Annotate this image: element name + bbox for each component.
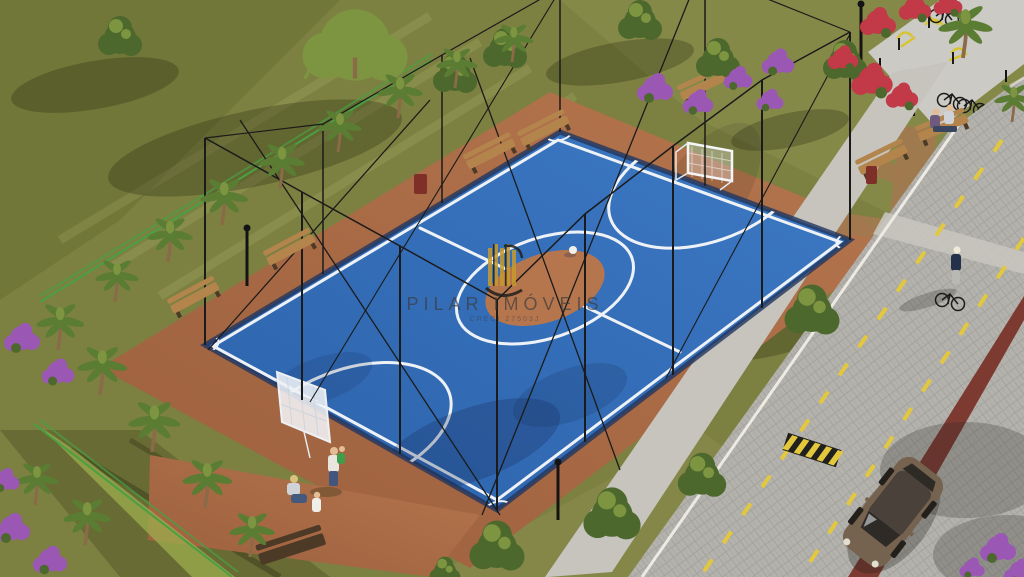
rendered-scene: PILAR IMÓVEIS CRECI 27503J [0,0,1024,577]
trash-bin [414,174,427,194]
watermark-subtitle: CRECI 27503J [470,316,541,323]
watermark-title: PILAR IMÓVEIS [406,293,603,314]
scene-svg: PILAR IMÓVEIS CRECI 27503J [0,0,1024,577]
trash-bin [866,166,877,184]
